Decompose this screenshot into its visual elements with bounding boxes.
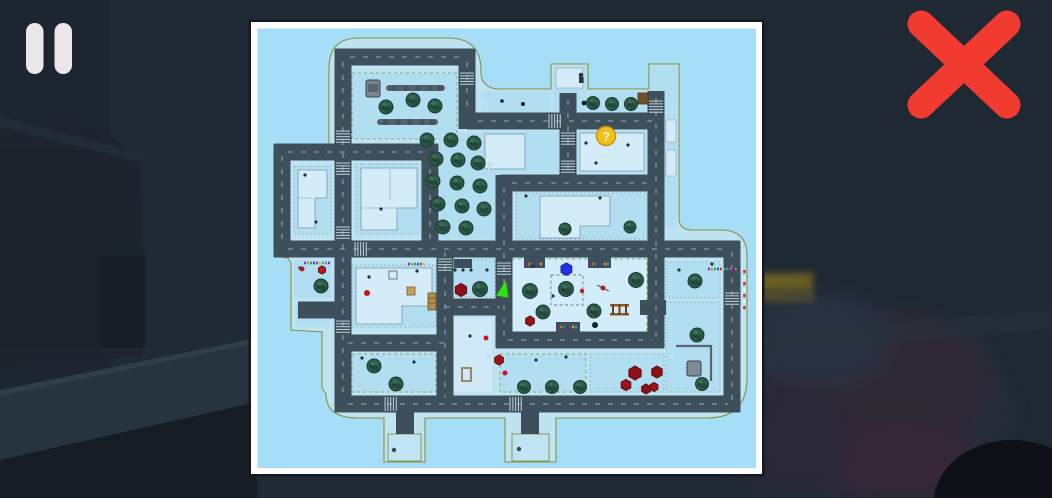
svg-text:?: ? (602, 129, 610, 144)
